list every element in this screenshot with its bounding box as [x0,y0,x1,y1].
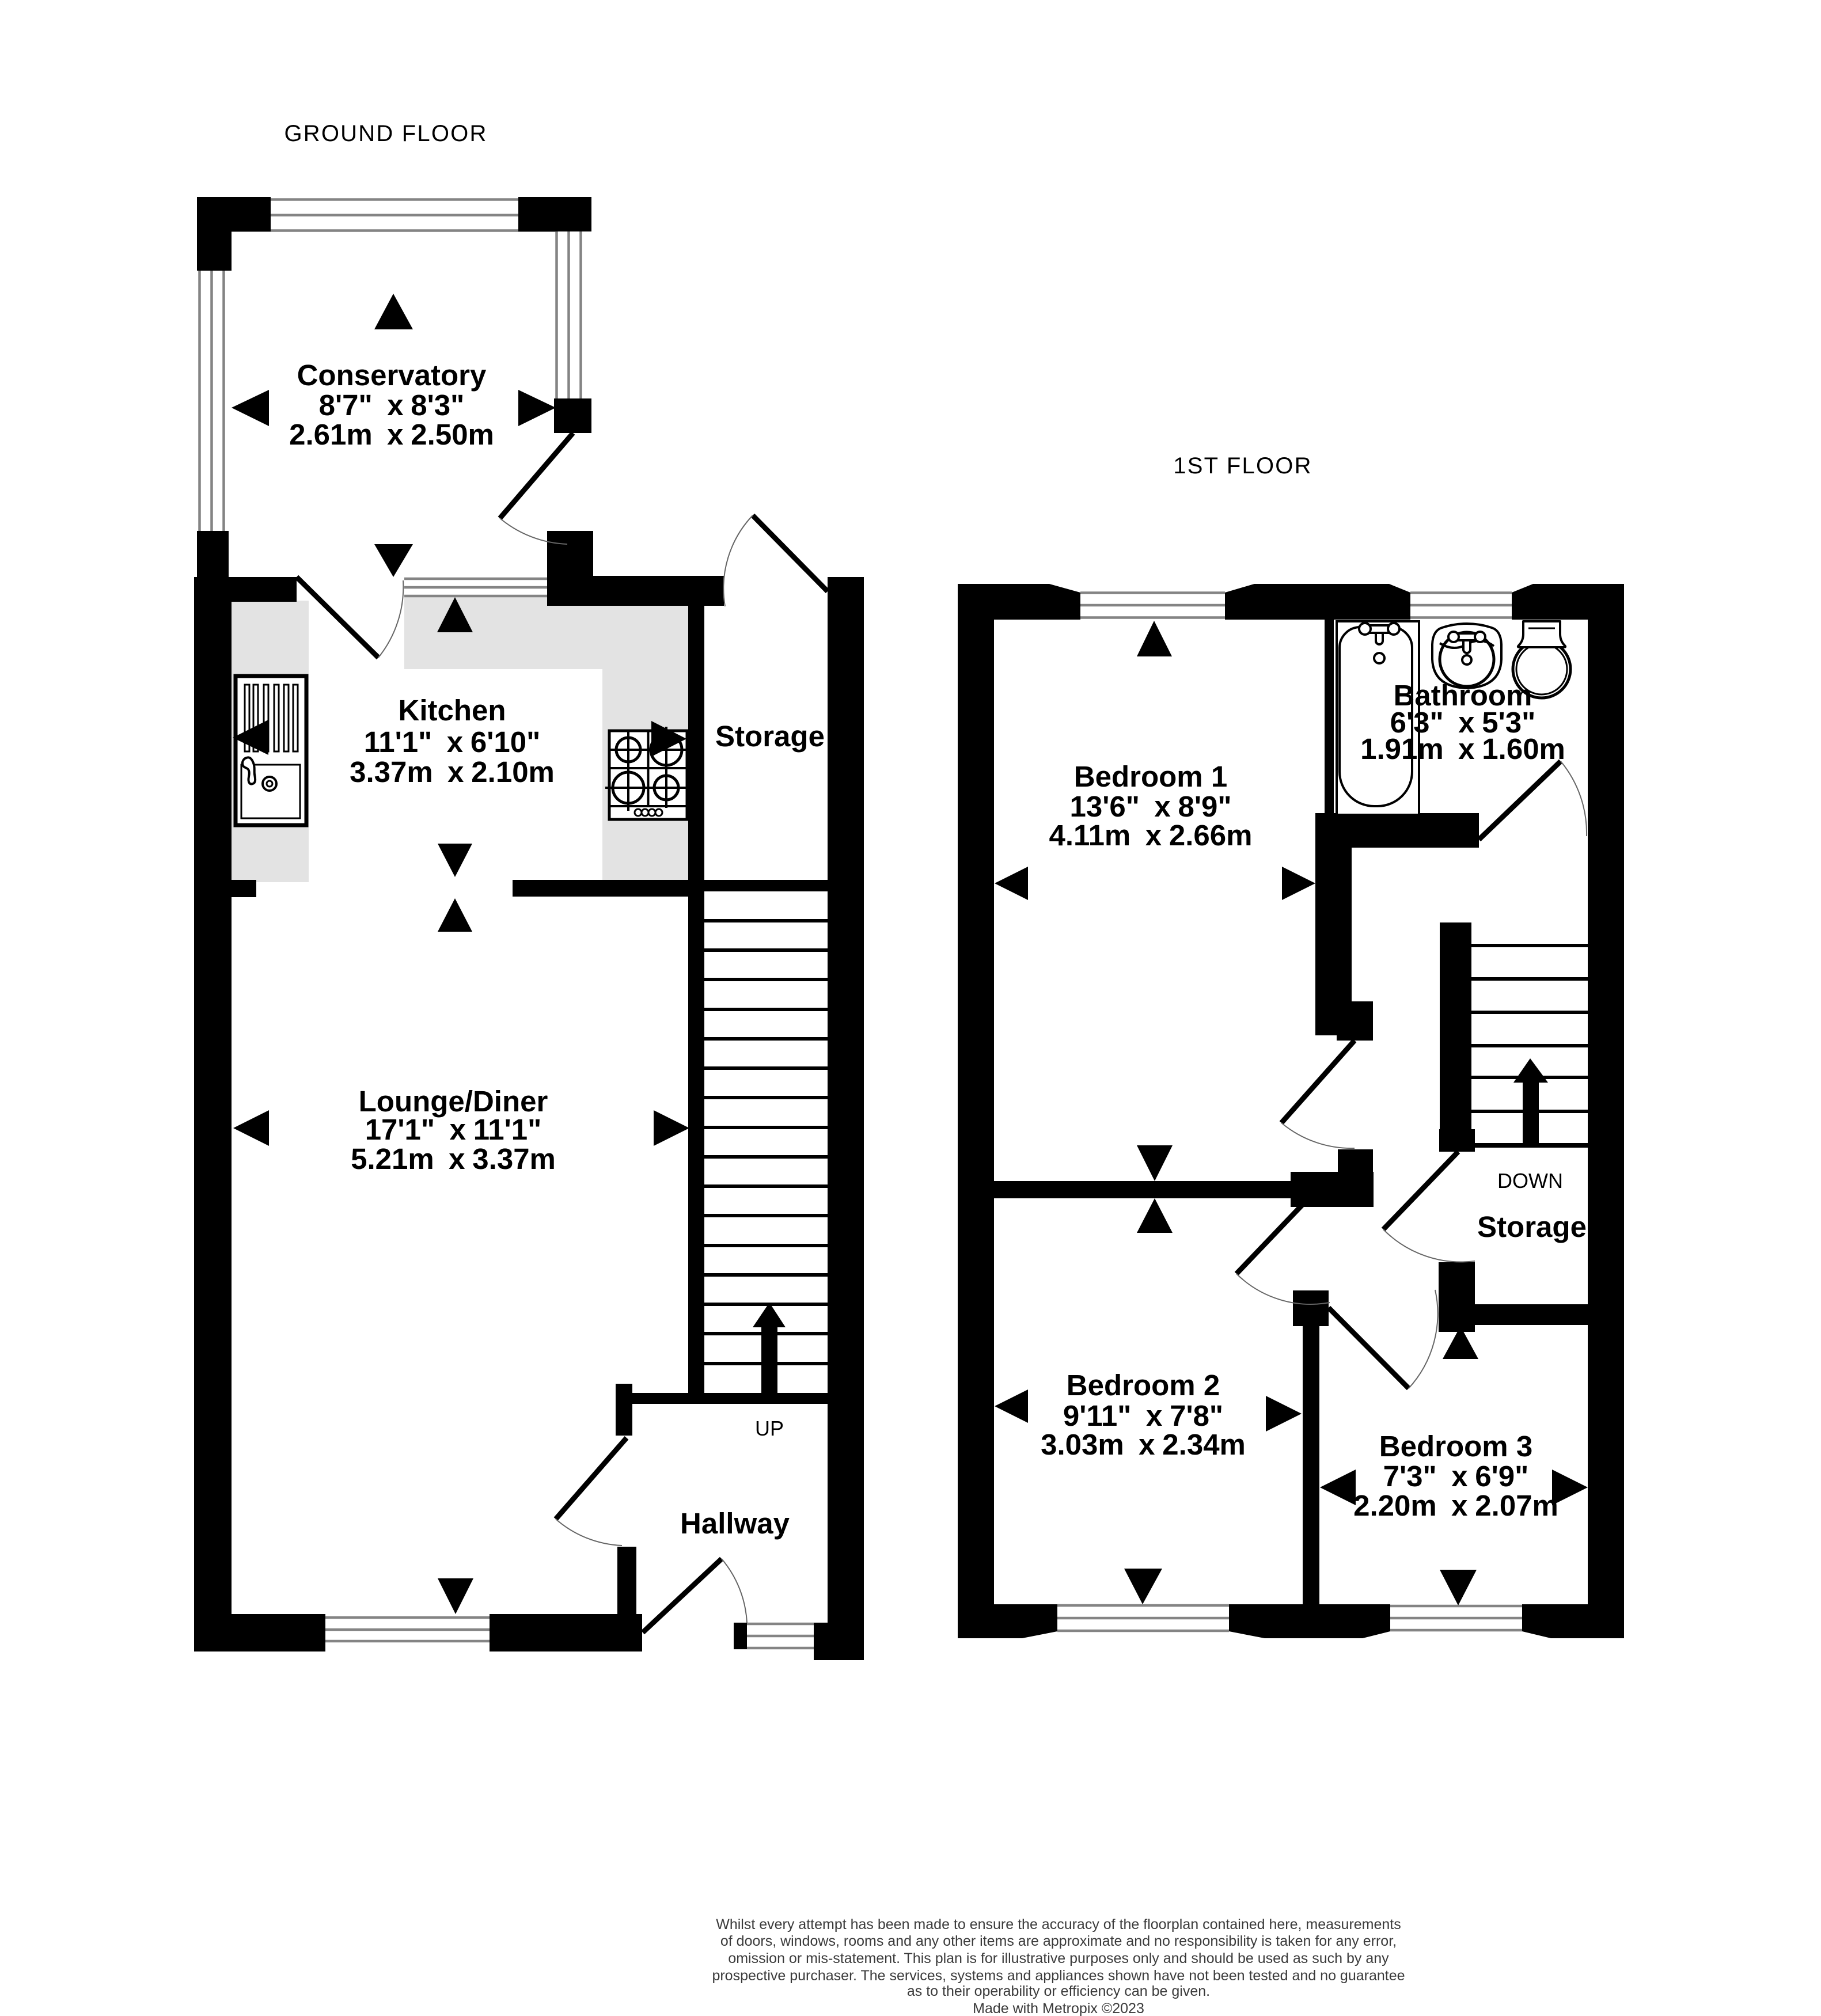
svg-text:UP: UP [755,1417,784,1440]
svg-text:Bedroom 3: Bedroom 3 [1379,1430,1532,1463]
svg-text:4.11m x 2.66m: 4.11m x 2.66m [1049,819,1252,852]
svg-text:Bedroom 1: Bedroom 1 [1074,760,1227,793]
svg-text:3.03m x 2.34m: 3.03m x 2.34m [1041,1428,1246,1461]
svg-text:Bedroom 2: Bedroom 2 [1067,1369,1220,1402]
svg-text:2.20m x 2.07m: 2.20m x 2.07m [1353,1489,1558,1522]
svg-text:17'1" x 11'1": 17'1" x 11'1" [365,1113,542,1146]
svg-text:DOWN: DOWN [1497,1169,1563,1193]
svg-text:Whilst every attempt has been: Whilst every attempt has been made to en… [716,1916,1401,1933]
svg-text:5.21m x 3.37m: 5.21m x 3.37m [351,1142,556,1175]
svg-text:Kitchen: Kitchen [398,694,506,727]
svg-text:13'6" x 8'9": 13'6" x 8'9" [1069,790,1231,823]
svg-text:Hallway: Hallway [680,1507,790,1540]
svg-text:8'7" x 8'3": 8'7" x 8'3" [319,389,465,422]
svg-text:of doors, windows, rooms and a: of doors, windows, rooms and any other i… [720,1933,1397,1949]
svg-text:7'3" x 6'9": 7'3" x 6'9" [1383,1460,1529,1493]
svg-text:9'11" x 7'8": 9'11" x 7'8" [1063,1399,1223,1432]
svg-text:GROUND FLOOR: GROUND FLOOR [284,121,487,146]
svg-text:1ST FLOOR: 1ST FLOOR [1173,453,1312,479]
svg-text:11'1" x 6'10": 11'1" x 6'10" [364,726,541,758]
svg-text:Storage: Storage [1477,1210,1587,1243]
svg-text:1.91m x 1.60m: 1.91m x 1.60m [1360,732,1565,765]
svg-text:prospective purchaser. The ser: prospective purchaser. The services, sys… [712,1968,1405,1984]
svg-text:Made with Metropix ©2023: Made with Metropix ©2023 [973,2000,1144,2016]
svg-text:2.61m x 2.50m: 2.61m x 2.50m [289,418,494,451]
svg-text:omission or mis-statement. Thi: omission or mis-statement. This plan is … [728,1950,1389,1966]
svg-text:3.37m x 2.10m: 3.37m x 2.10m [350,755,555,788]
svg-text:Storage: Storage [715,720,825,753]
svg-text:as to their operability or eff: as to their operability or efficiency ca… [907,1983,1210,1999]
svg-text:Conservatory: Conservatory [297,359,487,392]
